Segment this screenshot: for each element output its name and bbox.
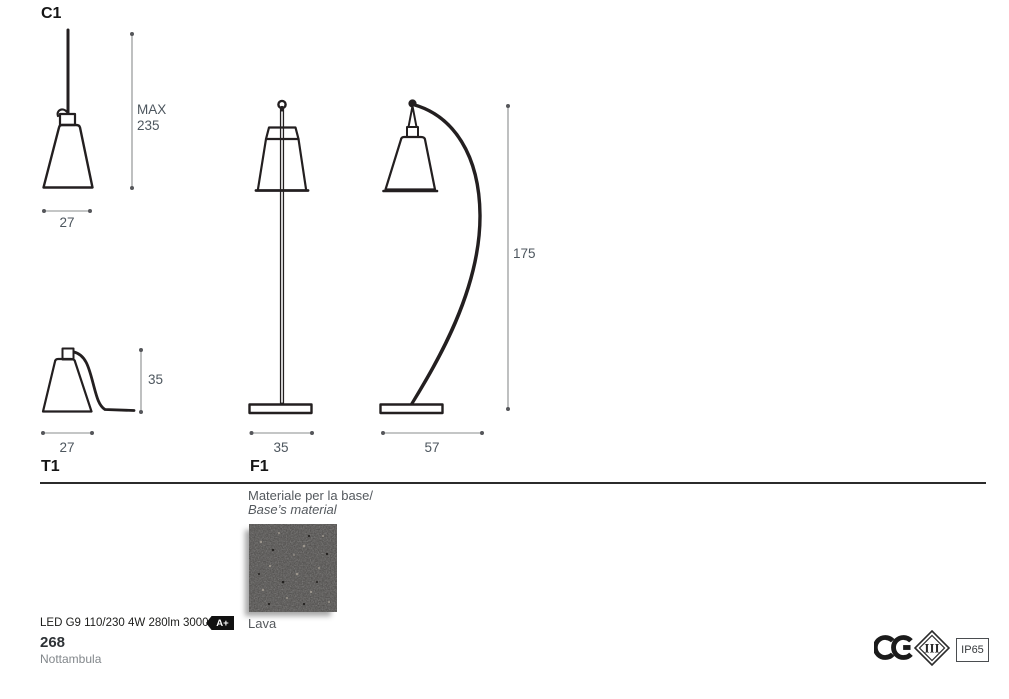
model-label-pendant: C1 (41, 5, 61, 23)
energy-class-label: A+ (216, 618, 228, 629)
product-name: Nottambula (40, 653, 101, 666)
section-divider (40, 482, 986, 484)
led-specification: LED G9 110/230 4W 280lm 3000°K (40, 617, 221, 630)
table-lamp-drawing (43, 349, 134, 412)
model-label-floor: F1 (250, 458, 269, 476)
lava-swatch-texture (249, 524, 337, 612)
dimension-dots (41, 32, 510, 435)
material-title-english: Base’s material (248, 503, 337, 517)
table-height-value: 35 (148, 373, 163, 388)
floor-arc-height-value: 175 (513, 247, 536, 262)
energy-class-badge: A+ (206, 616, 234, 630)
page-number: 268 (40, 635, 65, 652)
pendant-height-max-value: 235 (137, 119, 160, 134)
floor-arc-base-width-value: 57 (424, 441, 439, 456)
class-iii-label: III (924, 641, 939, 656)
material-swatch-name: Lava (248, 617, 276, 631)
dimension-lines (43, 34, 508, 433)
pendant-height-max-label: MAX (137, 103, 166, 118)
class-iii-icon: III (914, 630, 950, 666)
table-width-value: 27 (59, 441, 74, 456)
floor-straight-base-width-value: 35 (273, 441, 288, 456)
ce-mark-icon (874, 634, 914, 661)
pendant-width-value: 27 (59, 216, 74, 231)
ip-rating-badge: IP65 (956, 638, 989, 662)
catalog-page: C1 MAX 235 27 35 27 T1 35 F1 57 175 Mate… (0, 0, 1009, 699)
ip-rating-label: IP65 (961, 644, 984, 656)
floor-lamp-arc-drawing (381, 101, 480, 414)
model-label-table: T1 (41, 458, 60, 476)
lava-material-swatch (249, 524, 337, 612)
pendant-lamp-drawing (44, 30, 93, 188)
floor-lamp-straight-drawing (250, 101, 312, 413)
